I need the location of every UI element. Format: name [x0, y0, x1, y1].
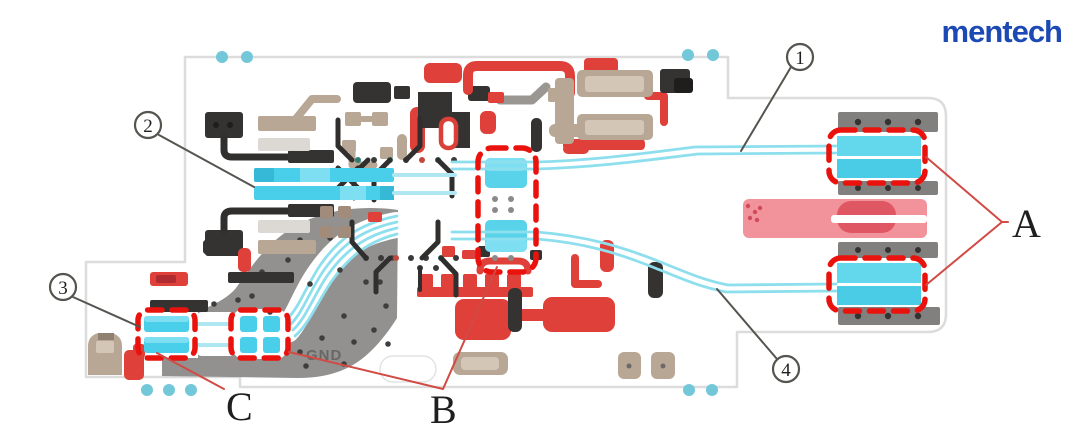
callout-3: 3 — [50, 274, 76, 300]
callout-2: 2 — [135, 112, 161, 138]
callout-3-number: 3 — [58, 278, 68, 299]
callout-1-number: 1 — [795, 48, 805, 69]
mentech-logo: mentech — [942, 14, 1063, 49]
region-label-a: A — [1012, 201, 1041, 246]
callout-4: 4 — [773, 356, 799, 382]
callout-4-number: 4 — [781, 360, 791, 381]
region-label-b: B — [430, 387, 457, 432]
region-label-c: C — [226, 384, 253, 429]
pcb-layout-screenshot: GND — [0, 0, 1080, 440]
pcb-layout-diagram: GND — [0, 0, 1080, 440]
callout-2-number: 2 — [143, 116, 153, 137]
laser-pad — [743, 199, 927, 238]
callout-1: 1 — [787, 44, 813, 70]
